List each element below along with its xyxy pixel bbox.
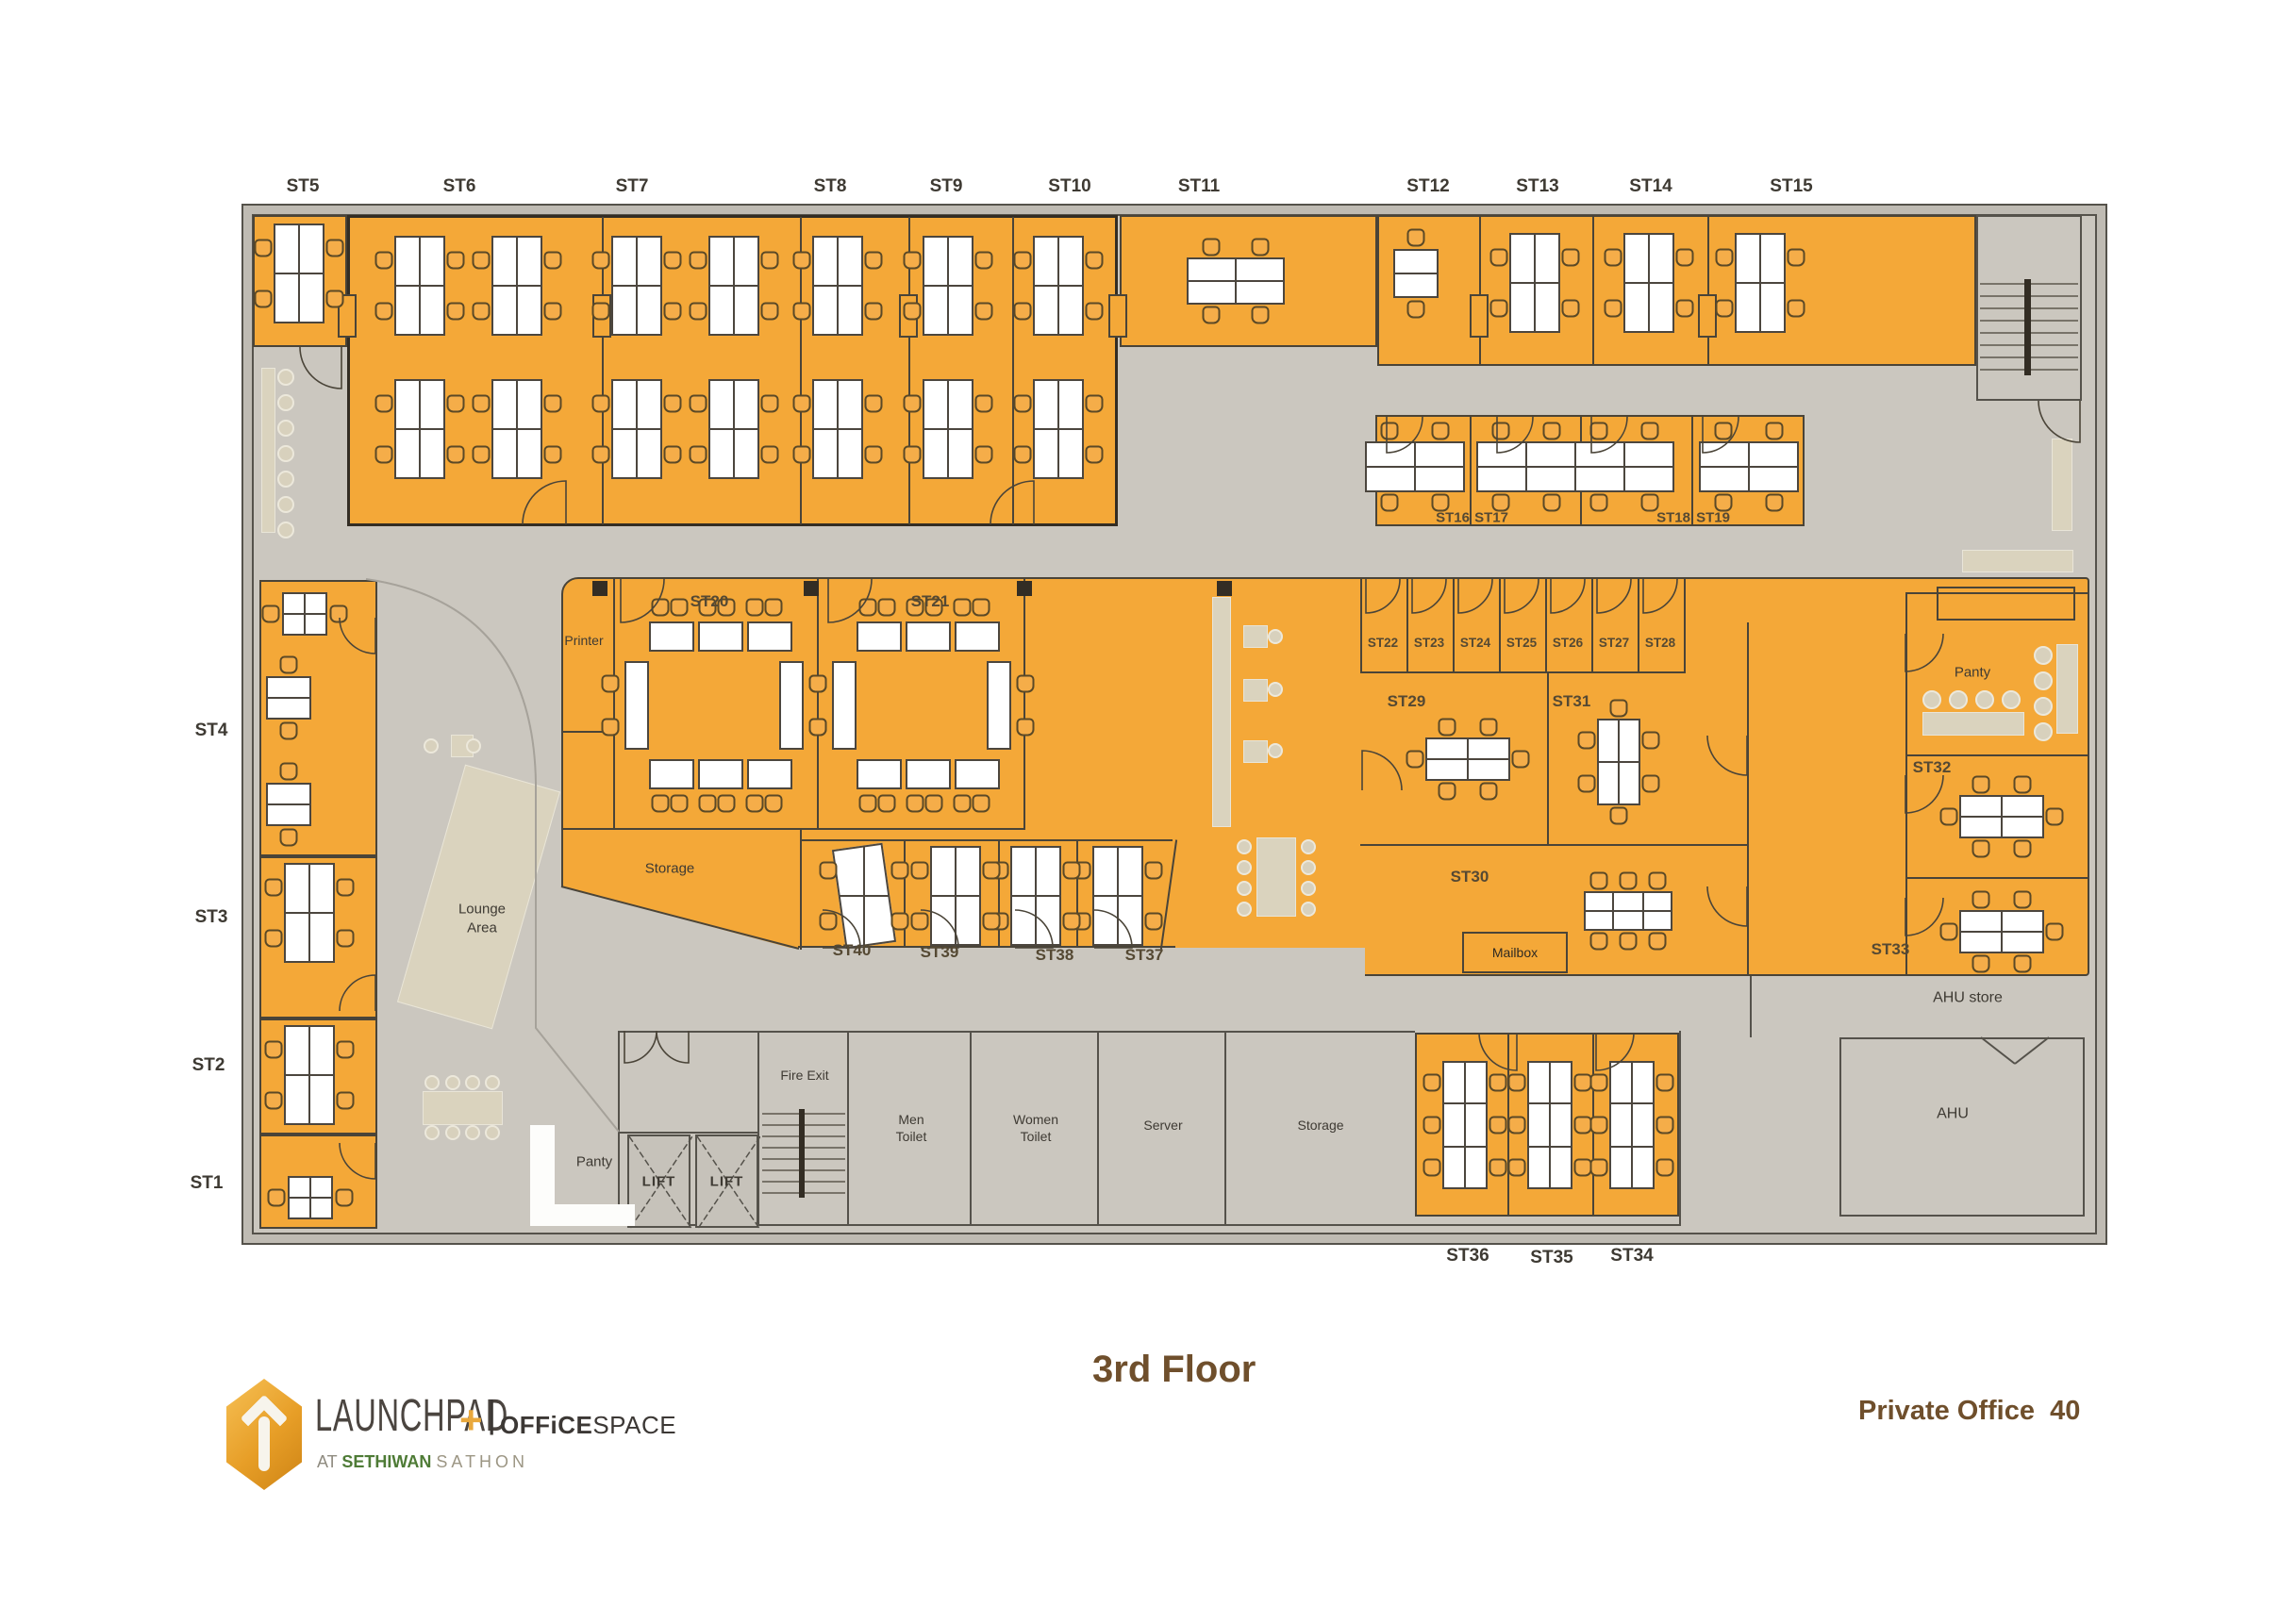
stool bbox=[1268, 629, 1283, 644]
room-label-st28: ST28 bbox=[1645, 635, 1675, 652]
chair bbox=[1642, 732, 1660, 750]
table-divider bbox=[923, 285, 973, 287]
chair bbox=[1014, 303, 1032, 321]
pantry-l-counter bbox=[530, 1204, 635, 1226]
chair bbox=[690, 303, 707, 321]
table-divider bbox=[284, 912, 335, 914]
chair bbox=[1407, 229, 1425, 247]
chair bbox=[337, 930, 355, 948]
chair bbox=[602, 719, 620, 737]
chair bbox=[1543, 422, 1561, 440]
chair bbox=[1641, 422, 1659, 440]
stool bbox=[485, 1125, 500, 1140]
wall bbox=[1591, 579, 1593, 671]
chair bbox=[544, 303, 562, 321]
table-divider bbox=[284, 1074, 335, 1076]
chair bbox=[447, 303, 465, 321]
chair bbox=[975, 303, 993, 321]
logo-arrow-stem bbox=[258, 1416, 270, 1471]
logo-hexagon-icon bbox=[226, 1379, 302, 1490]
label-st9: ST9 bbox=[930, 176, 963, 197]
chair bbox=[326, 240, 344, 257]
stool bbox=[1975, 690, 1994, 709]
chair bbox=[280, 763, 298, 781]
chair bbox=[1203, 239, 1221, 257]
label-st15: ST15 bbox=[1770, 176, 1812, 197]
chair bbox=[1656, 1159, 1674, 1177]
wall bbox=[618, 1031, 1415, 1033]
chair bbox=[255, 290, 273, 308]
stool bbox=[1268, 743, 1283, 758]
chair bbox=[690, 252, 707, 270]
chair bbox=[1940, 923, 1958, 941]
table-divider bbox=[394, 428, 445, 430]
pantry-counter bbox=[1922, 712, 2024, 736]
area-label-lounge: Lounge Area bbox=[449, 901, 515, 937]
stool bbox=[2002, 690, 2021, 709]
chair bbox=[891, 913, 909, 931]
chair bbox=[761, 252, 779, 270]
table-divider bbox=[491, 285, 542, 287]
wall bbox=[800, 830, 802, 950]
label-st34: ST34 bbox=[1610, 1246, 1653, 1267]
desk-table bbox=[698, 621, 743, 652]
table-divider bbox=[1699, 466, 1799, 468]
wall bbox=[613, 579, 615, 828]
chair bbox=[664, 303, 682, 321]
chair bbox=[255, 240, 273, 257]
table-divider bbox=[1509, 282, 1560, 284]
chair bbox=[671, 795, 689, 813]
private-office-count: Private Office 40 bbox=[1858, 1396, 2080, 1427]
table-divider bbox=[1464, 1061, 1466, 1189]
tagline-at: AT bbox=[317, 1452, 337, 1471]
stool bbox=[465, 1075, 480, 1090]
stool bbox=[1268, 682, 1283, 697]
chair bbox=[904, 446, 922, 464]
chair bbox=[1490, 249, 1508, 267]
stool bbox=[445, 1125, 460, 1140]
chair bbox=[1063, 913, 1081, 931]
lift-1: LIFT bbox=[627, 1134, 690, 1228]
chair bbox=[544, 446, 562, 464]
stool bbox=[1301, 860, 1316, 875]
wall bbox=[1747, 622, 1749, 976]
chair bbox=[1620, 872, 1638, 890]
chair bbox=[1972, 776, 1990, 794]
room-label-st20: ST20 bbox=[690, 591, 729, 612]
room-block-st12-st15 bbox=[1377, 215, 1976, 366]
chair bbox=[746, 795, 764, 813]
room-label-st19: ST19 bbox=[1696, 508, 1730, 527]
chair bbox=[1716, 300, 1734, 318]
chair bbox=[1489, 1159, 1507, 1177]
table-divider bbox=[1609, 1146, 1655, 1148]
stool bbox=[2034, 697, 2053, 716]
chair bbox=[1432, 422, 1450, 440]
wall bbox=[1545, 579, 1547, 671]
chair bbox=[473, 395, 491, 413]
chair bbox=[447, 395, 465, 413]
area-label-panty-left: Panty bbox=[576, 1152, 612, 1171]
chair bbox=[280, 656, 298, 674]
table-divider bbox=[1476, 466, 1576, 468]
table-divider bbox=[1623, 282, 1674, 284]
wall bbox=[1684, 579, 1686, 671]
chair bbox=[2046, 808, 2064, 826]
chair bbox=[865, 303, 883, 321]
chair bbox=[1407, 301, 1425, 319]
chair bbox=[337, 1092, 355, 1110]
stool bbox=[466, 738, 481, 754]
label-st11: ST11 bbox=[1178, 176, 1220, 197]
room-label-st38: ST38 bbox=[1036, 945, 1074, 966]
stool bbox=[277, 522, 294, 538]
label-st35: ST35 bbox=[1530, 1248, 1572, 1268]
chair bbox=[1252, 306, 1270, 324]
chair bbox=[1766, 422, 1784, 440]
room-label-st21: ST21 bbox=[911, 591, 950, 612]
chair bbox=[1406, 751, 1424, 769]
chair bbox=[337, 879, 355, 897]
chair bbox=[1656, 1074, 1674, 1092]
chair bbox=[765, 795, 783, 813]
table-divider bbox=[1597, 761, 1640, 763]
chair bbox=[664, 395, 682, 413]
lounge-table bbox=[423, 1091, 503, 1125]
chair bbox=[1676, 300, 1694, 318]
chair bbox=[447, 446, 465, 464]
chair bbox=[1423, 1117, 1441, 1134]
table-divider bbox=[611, 428, 662, 430]
wall bbox=[618, 1031, 620, 1226]
desk-table bbox=[747, 759, 792, 789]
wall bbox=[1750, 976, 1752, 1037]
table-divider bbox=[1425, 758, 1510, 760]
chair bbox=[793, 303, 811, 321]
chair bbox=[473, 303, 491, 321]
wall bbox=[1023, 579, 1025, 828]
corridor-carve bbox=[561, 948, 1365, 976]
chair bbox=[1423, 1159, 1441, 1177]
wall bbox=[1707, 217, 1709, 364]
wall bbox=[1470, 417, 1472, 524]
stool bbox=[2034, 671, 2053, 690]
desk-table bbox=[832, 661, 857, 750]
room-label-st16: ST16 bbox=[1436, 508, 1470, 527]
chair bbox=[1605, 300, 1622, 318]
chair bbox=[878, 795, 896, 813]
room-label-st17: ST17 bbox=[1474, 508, 1508, 527]
stool bbox=[1301, 881, 1316, 896]
chair bbox=[975, 446, 993, 464]
stool bbox=[1237, 860, 1252, 875]
chair bbox=[1439, 783, 1456, 801]
chair bbox=[336, 1189, 354, 1207]
chair bbox=[1972, 955, 1990, 973]
stool bbox=[1237, 839, 1252, 854]
chair bbox=[1014, 395, 1032, 413]
column bbox=[1217, 581, 1232, 596]
chair bbox=[1381, 422, 1399, 440]
chair bbox=[262, 605, 280, 623]
chair bbox=[1381, 494, 1399, 512]
chair bbox=[664, 446, 682, 464]
chair bbox=[820, 862, 838, 880]
area-label-fire-exit: Fire Exit bbox=[780, 1067, 828, 1084]
chair bbox=[1578, 732, 1596, 750]
chair bbox=[859, 599, 877, 617]
pantry-cabinet bbox=[1937, 587, 2075, 621]
chair bbox=[1620, 933, 1638, 951]
desk-table bbox=[955, 621, 1000, 652]
stair-rail bbox=[799, 1109, 805, 1198]
desk-table bbox=[955, 759, 1000, 789]
stool bbox=[424, 738, 439, 754]
chair bbox=[664, 252, 682, 270]
chair bbox=[473, 446, 491, 464]
wall bbox=[1479, 217, 1481, 364]
chair bbox=[268, 1189, 286, 1207]
table-divider bbox=[1092, 895, 1143, 897]
stool bbox=[1949, 690, 1968, 709]
table-divider bbox=[394, 285, 445, 287]
label-st5: ST5 bbox=[287, 176, 320, 197]
chair bbox=[765, 599, 783, 617]
chair bbox=[718, 795, 736, 813]
stool bbox=[277, 496, 294, 513]
chair bbox=[1940, 808, 1958, 826]
bench bbox=[2052, 439, 2072, 531]
room-label-st30: ST30 bbox=[1451, 867, 1489, 887]
chair bbox=[907, 795, 924, 813]
chair bbox=[375, 252, 393, 270]
chair bbox=[859, 795, 877, 813]
chair bbox=[1788, 300, 1805, 318]
label-st4: ST4 bbox=[195, 720, 228, 741]
chair bbox=[1086, 303, 1104, 321]
chair bbox=[1649, 933, 1667, 951]
desk-table bbox=[906, 759, 951, 789]
label-st36: ST36 bbox=[1446, 1246, 1489, 1267]
column-shaft bbox=[1470, 294, 1489, 338]
table-divider bbox=[611, 285, 662, 287]
area-label-ahu: AHU bbox=[1937, 1105, 1969, 1125]
label-st14: ST14 bbox=[1629, 176, 1672, 197]
table-divider bbox=[1010, 895, 1061, 897]
stool bbox=[1237, 881, 1252, 896]
chair bbox=[746, 599, 764, 617]
chair bbox=[1489, 1117, 1507, 1134]
label-st2: ST2 bbox=[192, 1055, 225, 1076]
stool bbox=[1237, 902, 1252, 917]
table-divider bbox=[1393, 273, 1439, 274]
chair bbox=[1972, 840, 1990, 858]
chair bbox=[375, 446, 393, 464]
chair bbox=[761, 395, 779, 413]
chair bbox=[1649, 872, 1667, 890]
chair bbox=[983, 862, 1001, 880]
table-divider bbox=[282, 613, 327, 615]
chair bbox=[1423, 1074, 1441, 1092]
wall bbox=[1547, 673, 1549, 844]
stool bbox=[277, 369, 294, 386]
chair bbox=[1610, 807, 1628, 825]
desk-table bbox=[987, 661, 1011, 750]
wall bbox=[563, 828, 1025, 830]
chair bbox=[592, 395, 610, 413]
bench bbox=[261, 368, 275, 533]
shared-table bbox=[1256, 837, 1296, 917]
chair bbox=[2014, 840, 2032, 858]
chair bbox=[1656, 1117, 1674, 1134]
chair bbox=[1590, 1117, 1608, 1134]
column bbox=[1017, 581, 1032, 596]
wall bbox=[1406, 579, 1408, 671]
wall bbox=[1360, 579, 1362, 671]
table-divider bbox=[266, 803, 311, 805]
area-label-women-toilet: Women Toilet bbox=[1003, 1111, 1069, 1145]
chair bbox=[1590, 494, 1608, 512]
chair bbox=[1508, 1117, 1526, 1134]
chair bbox=[1715, 422, 1733, 440]
table-divider bbox=[288, 1197, 333, 1199]
chair bbox=[1017, 675, 1035, 693]
chair bbox=[1014, 252, 1032, 270]
desk-table bbox=[624, 661, 649, 750]
room-label-st37: ST37 bbox=[1125, 945, 1164, 966]
table-divider bbox=[1959, 931, 2044, 933]
chair bbox=[1145, 913, 1163, 931]
column bbox=[804, 581, 819, 596]
desk-table bbox=[779, 661, 804, 750]
room-label-st26: ST26 bbox=[1553, 635, 1583, 652]
label-st6: ST6 bbox=[443, 176, 476, 197]
chair bbox=[1972, 891, 1990, 909]
chair bbox=[592, 252, 610, 270]
wall bbox=[1360, 844, 1749, 846]
desk-table bbox=[649, 621, 694, 652]
area-label-storage-bottom: Storage bbox=[1297, 1117, 1343, 1134]
chair bbox=[1086, 252, 1104, 270]
chair bbox=[1590, 1159, 1608, 1177]
wall bbox=[1360, 671, 1686, 673]
column-shaft bbox=[1698, 294, 1717, 338]
chair bbox=[1063, 862, 1081, 880]
chair bbox=[1492, 422, 1510, 440]
table-divider bbox=[812, 428, 863, 430]
stair-rail bbox=[2024, 279, 2031, 375]
room-label-st32: ST32 bbox=[1913, 757, 1952, 778]
chair bbox=[1543, 494, 1561, 512]
chair bbox=[904, 395, 922, 413]
tagline-sethiwan: SETHIWAN bbox=[341, 1452, 431, 1471]
chair bbox=[375, 303, 393, 321]
stool bbox=[424, 1125, 440, 1140]
room-label-st31: ST31 bbox=[1553, 691, 1591, 712]
chair bbox=[973, 599, 990, 617]
chair bbox=[265, 1041, 283, 1059]
lift-label: LIFT bbox=[629, 1173, 689, 1189]
chair bbox=[1562, 300, 1580, 318]
chair bbox=[891, 862, 909, 880]
wall bbox=[618, 1224, 1679, 1226]
chair bbox=[809, 675, 827, 693]
chair bbox=[2014, 776, 2032, 794]
label-st12: ST12 bbox=[1406, 176, 1449, 197]
chair bbox=[761, 303, 779, 321]
chair bbox=[1439, 719, 1456, 737]
chair bbox=[1788, 249, 1805, 267]
chair bbox=[793, 446, 811, 464]
stool bbox=[445, 1075, 460, 1090]
desk-table bbox=[698, 759, 743, 789]
table-divider bbox=[1584, 910, 1672, 912]
table-divider bbox=[1442, 1102, 1488, 1104]
table-divider bbox=[1527, 1146, 1572, 1148]
wall bbox=[970, 1031, 972, 1226]
area-label-mailbox: Mailbox bbox=[1492, 944, 1538, 961]
wall bbox=[1076, 839, 1078, 948]
table-divider bbox=[1609, 1102, 1655, 1104]
wall bbox=[1638, 579, 1639, 671]
chair bbox=[1610, 700, 1628, 718]
floor-title: 3rd Floor bbox=[1092, 1349, 1256, 1391]
room-label-st25: ST25 bbox=[1506, 635, 1537, 652]
chair bbox=[2046, 923, 2064, 941]
chair bbox=[925, 795, 943, 813]
room-label-st23: ST23 bbox=[1414, 635, 1444, 652]
chair bbox=[1605, 249, 1622, 267]
chair bbox=[375, 395, 393, 413]
area-label-storage-mid: Storage bbox=[645, 859, 695, 878]
chair bbox=[1676, 249, 1694, 267]
label-st3: ST3 bbox=[195, 907, 228, 928]
chair bbox=[975, 395, 993, 413]
logo-office: OFFiCE bbox=[500, 1411, 592, 1439]
chair bbox=[447, 252, 465, 270]
chair bbox=[793, 252, 811, 270]
chair bbox=[265, 1092, 283, 1110]
chair bbox=[1480, 719, 1498, 737]
chair bbox=[652, 599, 670, 617]
label-st1: ST1 bbox=[191, 1173, 224, 1194]
table-divider bbox=[274, 273, 324, 274]
chair bbox=[761, 446, 779, 464]
chair bbox=[911, 913, 929, 931]
table-divider bbox=[708, 428, 759, 430]
chair bbox=[1590, 422, 1608, 440]
stool bbox=[1922, 690, 1941, 709]
chair bbox=[1017, 719, 1035, 737]
wall bbox=[904, 839, 906, 948]
chair bbox=[911, 862, 929, 880]
desk-table bbox=[857, 621, 902, 652]
stool bbox=[277, 445, 294, 462]
table-divider bbox=[1442, 1146, 1488, 1148]
side-table bbox=[1243, 679, 1268, 702]
stool bbox=[485, 1075, 500, 1090]
chair bbox=[983, 913, 1001, 931]
ahu-room-outline bbox=[1839, 1037, 2085, 1217]
chair bbox=[2014, 891, 2032, 909]
room-label-st24: ST24 bbox=[1460, 635, 1490, 652]
stool bbox=[1301, 839, 1316, 854]
wall bbox=[800, 839, 1173, 841]
chair bbox=[1252, 239, 1270, 257]
chair bbox=[544, 252, 562, 270]
floor-plan-page: LIFT LIFT ST5 ST6 ST7 ST8 ST9 ST10 ST11 … bbox=[0, 0, 2296, 1623]
